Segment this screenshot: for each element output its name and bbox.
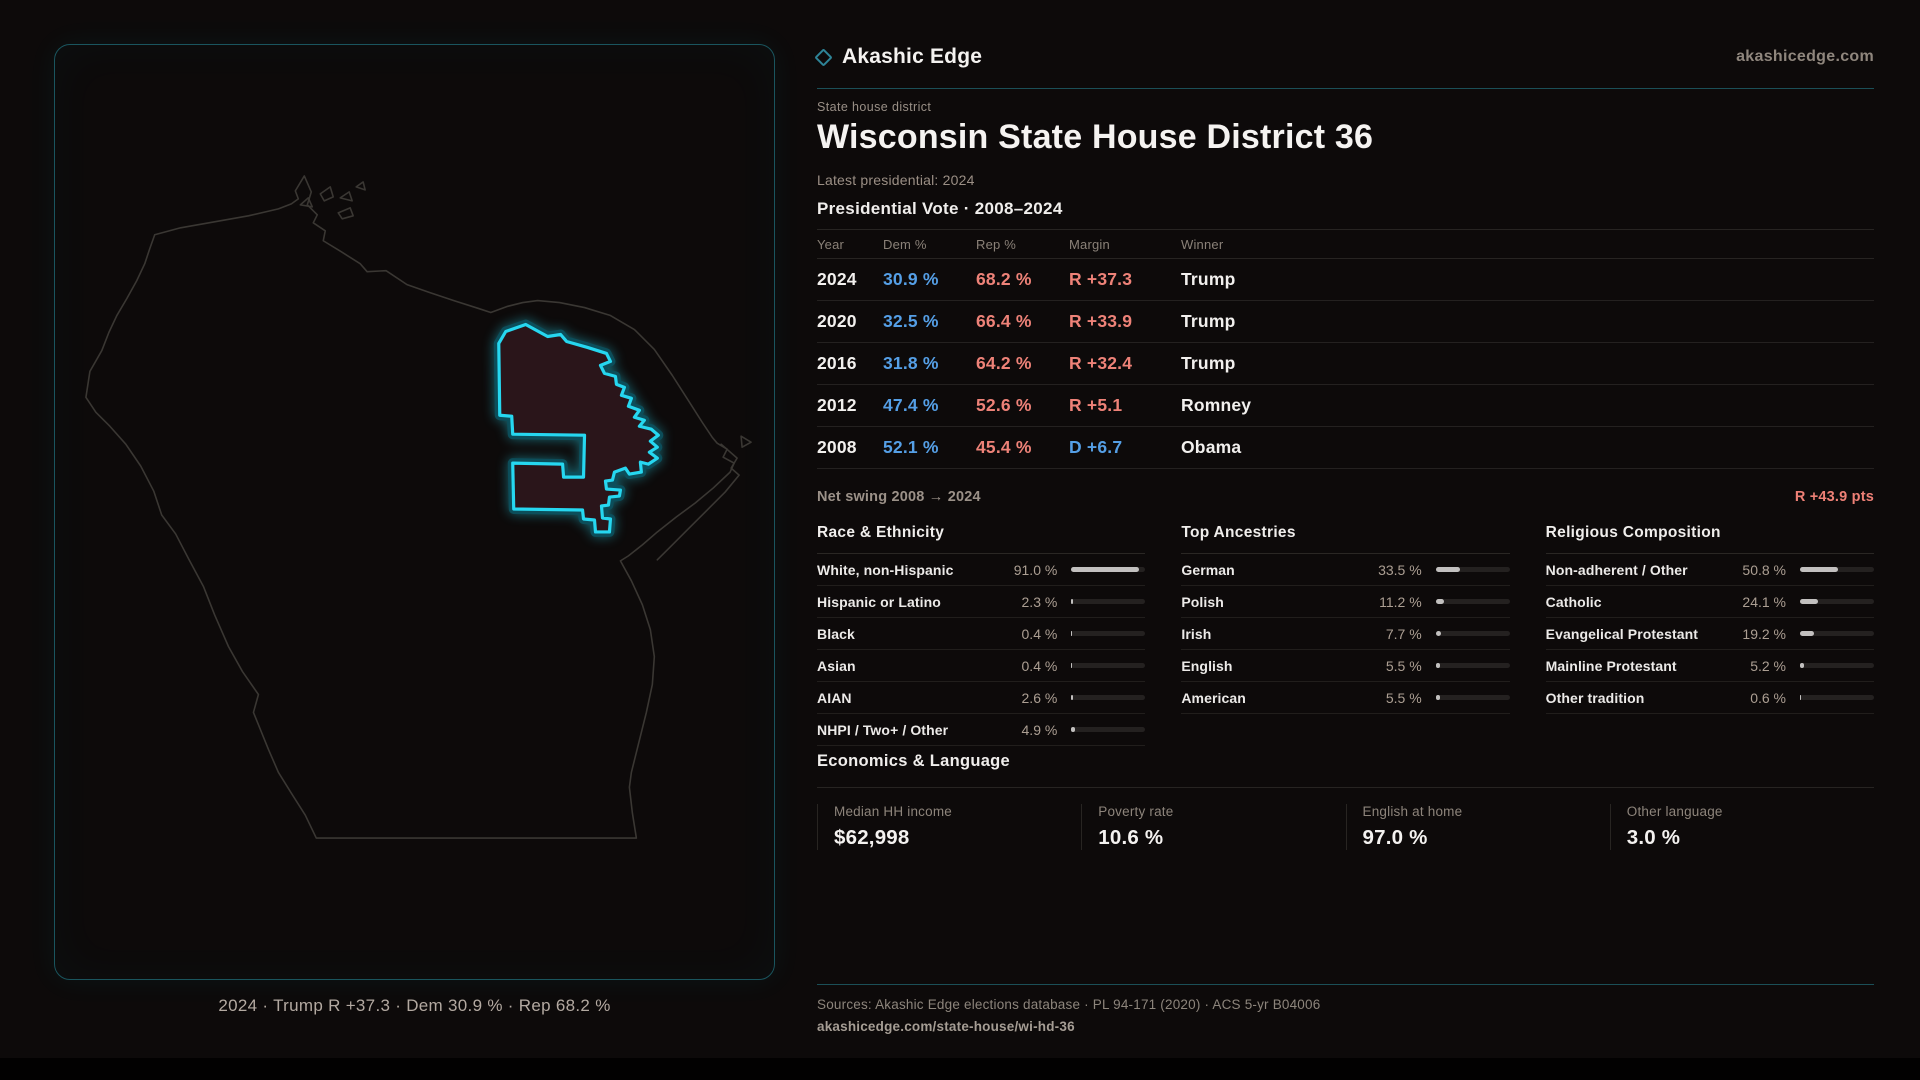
demo-bar: [1071, 567, 1145, 572]
map-caption: 2024 · Trump R +37.3 · Dem 30.9 % · Rep …: [54, 996, 775, 1016]
vote-margin: R +5.1: [1069, 395, 1181, 416]
vote-dem-pct: 31.8 %: [883, 353, 976, 374]
vote-margin: R +37.3: [1069, 269, 1181, 290]
demo-row: Hispanic or Latino2.3 %: [817, 586, 1145, 618]
door-peninsula-line: [657, 444, 739, 560]
vote-col-header: Year: [817, 237, 883, 252]
demo-row-value: 5.2 %: [1736, 658, 1786, 674]
district-map-panel: [54, 44, 775, 980]
demo-row-label: White, non-Hispanic: [817, 562, 993, 578]
vote-margin: R +33.9: [1069, 311, 1181, 332]
vote-winner: Trump: [1181, 311, 1874, 332]
stat-value: 10.6 %: [1098, 826, 1345, 850]
bottom-strip: [0, 1058, 1920, 1080]
net-swing-value: R +43.9 pts: [1795, 489, 1874, 505]
wisconsin-outline: [86, 176, 734, 838]
vote-rep-pct: 52.6 %: [976, 395, 1069, 416]
vote-row: 201247.4 %52.6 %R +5.1Romney: [817, 385, 1874, 427]
vote-year: 2012: [817, 395, 883, 416]
demo-panel-title: Race & Ethnicity: [817, 524, 1145, 554]
demo-row-value: 7.7 %: [1372, 626, 1422, 642]
demo-panel: Religious CompositionNon-adherent / Othe…: [1546, 514, 1874, 746]
demo-row: Catholic24.1 %: [1546, 586, 1874, 618]
demo-row-label: Other tradition: [1546, 690, 1722, 706]
brand-name: Akashic Edge: [842, 45, 982, 69]
demo-row-label: Non-adherent / Other: [1546, 562, 1722, 578]
vote-rep-pct: 45.4 %: [976, 437, 1069, 458]
stat-label: Poverty rate: [1098, 804, 1345, 819]
demo-bar-fill: [1800, 695, 1801, 700]
demo-panel: Top AncestriesGerman33.5 %Polish11.2 %Ir…: [1181, 514, 1509, 746]
demo-bar-fill: [1071, 631, 1072, 636]
stat-label: Other language: [1627, 804, 1874, 819]
diamond-icon: [814, 48, 832, 66]
demo-bar: [1436, 599, 1510, 604]
stat-value: 97.0 %: [1363, 826, 1610, 850]
demo-bar: [1071, 599, 1145, 604]
demo-panel-title: Top Ancestries: [1181, 524, 1509, 554]
demo-bar-fill: [1436, 567, 1461, 572]
demo-bar: [1800, 663, 1874, 668]
demo-row: Asian0.4 %: [817, 650, 1145, 682]
demo-row-label: AIAN: [817, 690, 993, 706]
demo-row-value: 5.5 %: [1372, 690, 1422, 706]
demo-row-value: 19.2 %: [1736, 626, 1786, 642]
demo-row-value: 11.2 %: [1372, 594, 1422, 610]
demo-row: White, non-Hispanic91.0 %: [817, 554, 1145, 586]
demo-row-value: 2.3 %: [1007, 594, 1057, 610]
demo-row: Polish11.2 %: [1181, 586, 1509, 618]
stat-label: Median HH income: [834, 804, 1081, 819]
vote-col-header: Rep %: [976, 237, 1069, 252]
demo-bar-fill: [1800, 631, 1814, 636]
header-divider: [817, 88, 1874, 89]
stat-value: $62,998: [834, 826, 1081, 850]
vote-row: 201631.8 %64.2 %R +32.4Trump: [817, 343, 1874, 385]
demo-row: Other tradition0.6 %: [1546, 682, 1874, 714]
demo-row-label: Polish: [1181, 594, 1357, 610]
stat-label: English at home: [1363, 804, 1610, 819]
demo-row: NHPI / Two+ / Other4.9 %: [817, 714, 1145, 746]
brand-site-link[interactable]: akashicedge.com: [1736, 48, 1874, 66]
demo-row-label: American: [1181, 690, 1357, 706]
demo-row-value: 0.4 %: [1007, 626, 1057, 642]
vote-winner: Romney: [1181, 395, 1874, 416]
net-swing-label: Net swing 2008 → 2024: [817, 489, 981, 505]
demo-bar: [1071, 631, 1145, 636]
demo-bar-fill: [1071, 727, 1075, 732]
demo-row-value: 4.9 %: [1007, 722, 1057, 738]
demo-bar-fill: [1071, 695, 1073, 700]
demo-row: Mainline Protestant5.2 %: [1546, 650, 1874, 682]
vote-row: 202032.5 %66.4 %R +33.9Trump: [817, 301, 1874, 343]
demo-row-value: 33.5 %: [1372, 562, 1422, 578]
vote-dem-pct: 47.4 %: [883, 395, 976, 416]
demo-bar: [1071, 727, 1145, 732]
demo-row-value: 0.4 %: [1007, 658, 1057, 674]
district-shape[interactable]: [499, 325, 659, 532]
vote-col-header: Margin: [1069, 237, 1181, 252]
vote-year: 2020: [817, 311, 883, 332]
demo-row: English5.5 %: [1181, 650, 1509, 682]
vote-margin: D +6.7: [1069, 437, 1181, 458]
stat-block: Median HH income$62,998: [817, 804, 1081, 850]
demo-row-label: NHPI / Two+ / Other: [817, 722, 993, 738]
brand-row: Akashic Edge akashicedge.com: [817, 42, 1874, 72]
footer: Sources: Akashic Edge elections database…: [817, 984, 1874, 1034]
vote-margin: R +32.4: [1069, 353, 1181, 374]
demo-bar: [1800, 567, 1874, 572]
demo-bar-fill: [1436, 631, 1442, 636]
economics-title: Economics & Language: [817, 752, 1874, 788]
demo-row-label: Catholic: [1546, 594, 1722, 610]
demo-bar: [1436, 695, 1510, 700]
vote-winner: Trump: [1181, 353, 1874, 374]
demo-bar-fill: [1436, 599, 1444, 604]
vote-row: 200852.1 %45.4 %D +6.7Obama: [817, 427, 1874, 469]
demo-row-label: Black: [817, 626, 993, 642]
eyebrow-label: State house district: [817, 100, 931, 114]
demo-row-label: Irish: [1181, 626, 1357, 642]
demo-row-value: 5.5 %: [1372, 658, 1422, 674]
washington-island: [741, 436, 751, 447]
demo-row-label: German: [1181, 562, 1357, 578]
demo-bar: [1800, 695, 1874, 700]
demo-row-value: 0.6 %: [1736, 690, 1786, 706]
vote-col-header: Dem %: [883, 237, 976, 252]
brand: Akashic Edge: [817, 45, 982, 69]
latest-presidential-label: Latest presidential: 2024: [817, 172, 975, 188]
demo-row-value: 50.8 %: [1736, 562, 1786, 578]
demo-row: Evangelical Protestant19.2 %: [1546, 618, 1874, 650]
economics-stats: Median HH income$62,998Poverty rate10.6 …: [817, 788, 1874, 850]
sources-text: Sources: Akashic Edge elections database…: [817, 997, 1874, 1012]
vote-winner: Trump: [1181, 269, 1874, 290]
vote-year: 2016: [817, 353, 883, 374]
demo-bar-fill: [1800, 567, 1838, 572]
demo-bar: [1800, 631, 1874, 636]
demo-row-label: English: [1181, 658, 1357, 674]
demo-row: American5.5 %: [1181, 682, 1509, 714]
economics-section: Economics & Language Median HH income$62…: [817, 752, 1874, 850]
net-swing-row: Net swing 2008 → 2024 R +43.9 pts: [817, 489, 1874, 505]
demo-row-value: 24.1 %: [1736, 594, 1786, 610]
demo-row-label: Hispanic or Latino: [817, 594, 993, 610]
page: 2024 · Trump R +37.3 · Dem 30.9 % · Rep …: [0, 0, 1920, 1080]
vote-year: 2008: [817, 437, 883, 458]
demo-row: Irish7.7 %: [1181, 618, 1509, 650]
demo-row: Non-adherent / Other50.8 %: [1546, 554, 1874, 586]
demo-bar: [1800, 599, 1874, 604]
demo-bar: [1071, 663, 1145, 668]
demo-bar-fill: [1071, 663, 1072, 668]
vote-dem-pct: 52.1 %: [883, 437, 976, 458]
demo-row-label: Asian: [817, 658, 993, 674]
vote-dem-pct: 32.5 %: [883, 311, 976, 332]
demo-row-value: 2.6 %: [1007, 690, 1057, 706]
demo-row-label: Mainline Protestant: [1546, 658, 1722, 674]
demo-bar: [1071, 695, 1145, 700]
state-map: [55, 45, 774, 979]
footer-page-link[interactable]: akashicedge.com/state-house/wi-hd-36: [817, 1019, 1874, 1034]
demo-bar: [1436, 631, 1510, 636]
vote-col-header: Winner: [1181, 237, 1874, 252]
stat-block: English at home97.0 %: [1346, 804, 1610, 850]
main-content: Akashic Edge akashicedge.com State house…: [817, 0, 1874, 1056]
stat-block: Other language3.0 %: [1610, 804, 1874, 850]
demo-row-value: 91.0 %: [1007, 562, 1057, 578]
vote-rep-pct: 68.2 %: [976, 269, 1069, 290]
demo-panel-title: Religious Composition: [1546, 524, 1874, 554]
demo-bar: [1436, 663, 1510, 668]
demo-bar-fill: [1071, 567, 1138, 572]
vote-rep-pct: 64.2 %: [976, 353, 1069, 374]
demo-bar: [1436, 567, 1510, 572]
stat-block: Poverty rate10.6 %: [1081, 804, 1345, 850]
vote-winner: Obama: [1181, 437, 1874, 458]
vote-dem-pct: 30.9 %: [883, 269, 976, 290]
demo-row-label: Evangelical Protestant: [1546, 626, 1722, 642]
demo-row: Black0.4 %: [817, 618, 1145, 650]
demographics-panels: Race & EthnicityWhite, non-Hispanic91.0 …: [817, 514, 1874, 746]
demo-bar-fill: [1800, 599, 1818, 604]
vote-table: Presidential Vote · 2008–2024 YearDem %R…: [817, 199, 1874, 469]
vote-table-title: Presidential Vote · 2008–2024: [817, 199, 1874, 219]
vote-table-rows: 202430.9 %68.2 %R +37.3Trump202032.5 %66…: [817, 259, 1874, 469]
vote-rep-pct: 66.4 %: [976, 311, 1069, 332]
demo-row: AIAN2.6 %: [817, 682, 1145, 714]
page-title: Wisconsin State House District 36: [817, 118, 1373, 157]
demo-bar-fill: [1800, 663, 1804, 668]
demo-row: German33.5 %: [1181, 554, 1509, 586]
vote-table-header: YearDem %Rep %MarginWinner: [817, 229, 1874, 259]
demo-bar-fill: [1436, 663, 1440, 668]
vote-year: 2024: [817, 269, 883, 290]
demo-panel: Race & EthnicityWhite, non-Hispanic91.0 …: [817, 514, 1145, 746]
stat-value: 3.0 %: [1627, 826, 1874, 850]
vote-row: 202430.9 %68.2 %R +37.3Trump: [817, 259, 1874, 301]
demo-bar-fill: [1071, 599, 1073, 604]
demo-bar-fill: [1436, 695, 1440, 700]
